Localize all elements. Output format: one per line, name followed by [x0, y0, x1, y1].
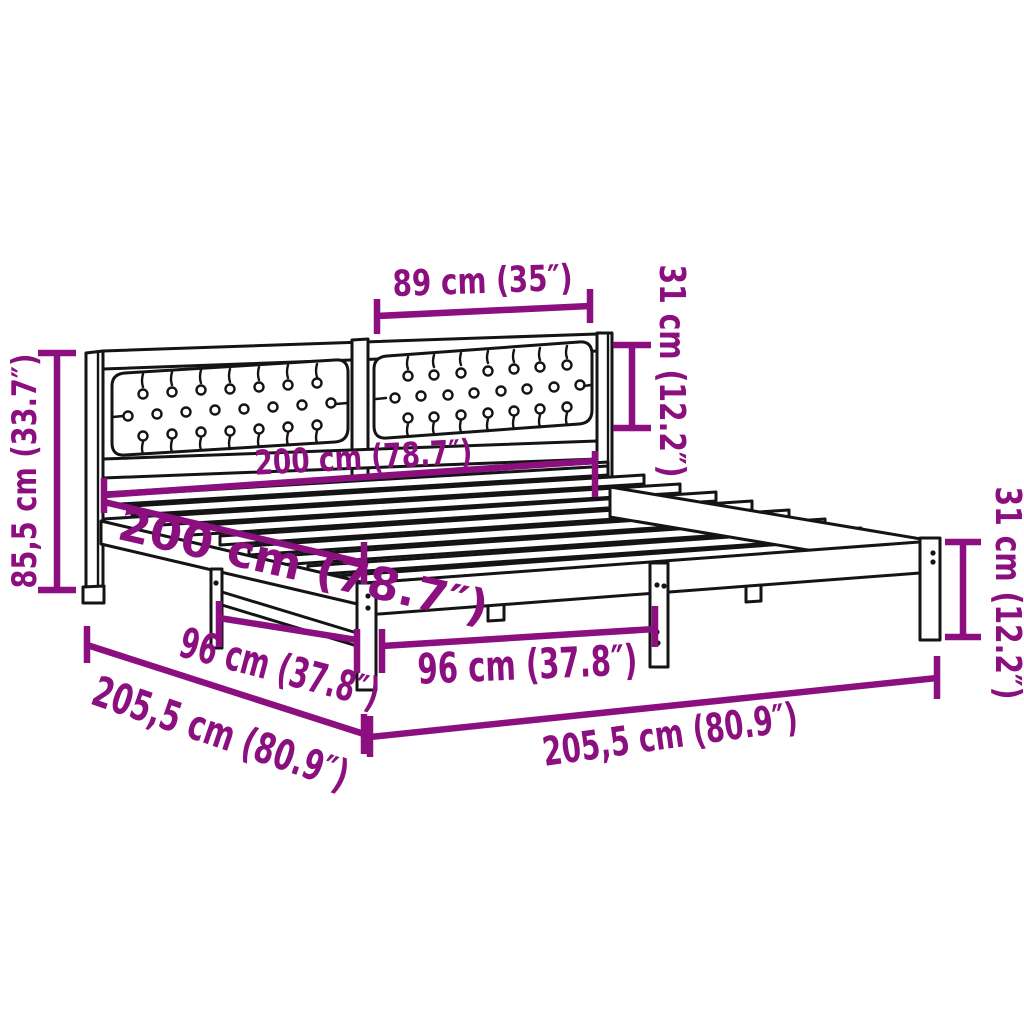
dim-front-rail-leg-spacing-label: 96 cm (37.8″) — [416, 635, 638, 694]
headboard-cushion-right — [374, 342, 592, 438]
headboard-left-post-foot — [83, 586, 104, 603]
product-dimension-diagram: 89 cm (35″) 31 cm (12.2″) 200 cm (78.7″)… — [0, 0, 1024, 1024]
dim-frame-height: 31 cm (12.2″) — [945, 487, 1024, 700]
dim-overall-height: 85,5 cm (33.7″) — [5, 353, 76, 590]
dim-headboard-cushion-width: 89 cm (35″) — [377, 258, 590, 334]
dim-headboard-cushion-width-label: 89 cm (35″) — [392, 258, 573, 305]
dim-headboard-cushion-height: 31 cm (12.2″) — [613, 265, 692, 478]
dim-headboard-cushion-height-label: 31 cm (12.2″) — [651, 265, 692, 478]
headboard-left-post — [86, 351, 103, 602]
front-right-corner-leg — [920, 538, 940, 640]
bed-frame-diagram: 89 cm (35″) 31 cm (12.2″) 200 cm (78.7″)… — [0, 0, 1024, 1024]
dim-overall-height-label: 85,5 cm (33.7″) — [5, 354, 45, 589]
dim-frame-height-label: 31 cm (12.2″) — [987, 487, 1024, 700]
